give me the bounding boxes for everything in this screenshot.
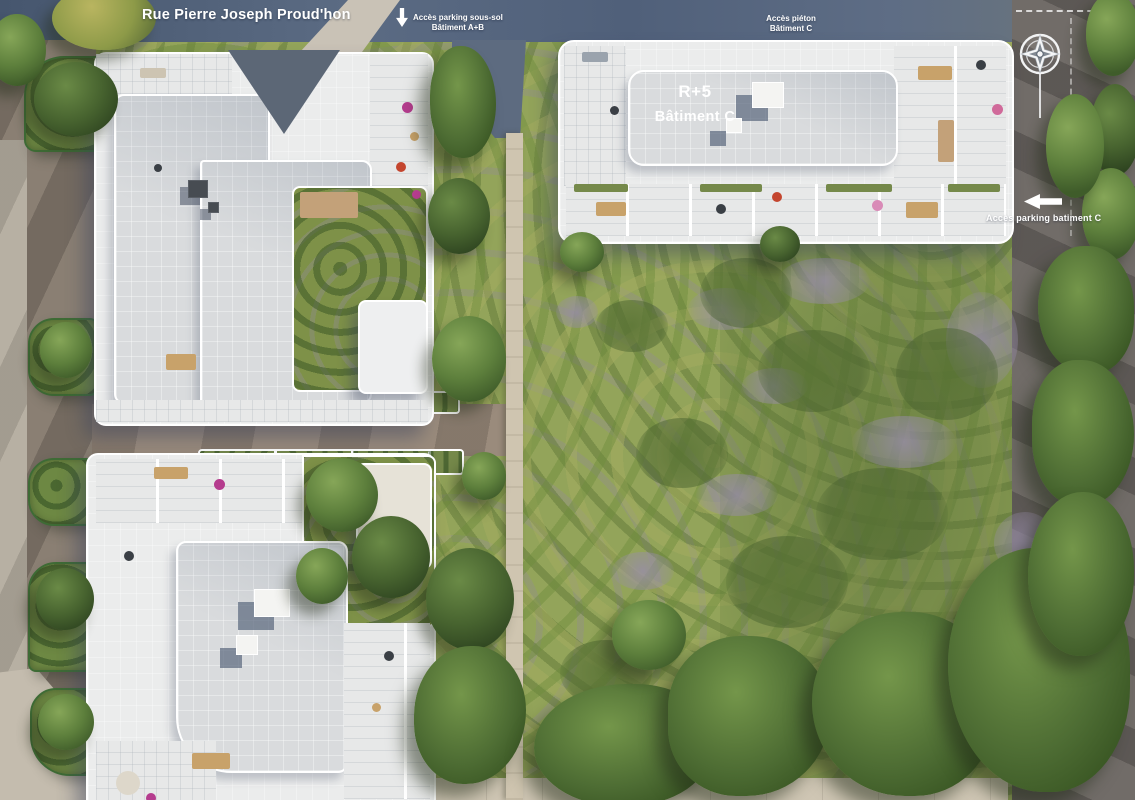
tree [560,232,604,272]
roof-unit [188,180,208,198]
roof-terrace [96,741,216,800]
chair [154,164,162,172]
table [410,132,419,141]
table [918,66,952,80]
tree [40,322,92,378]
tree-grove [1032,360,1134,506]
table [166,354,196,370]
umbrella [396,162,406,172]
access-pieton-line2: Bâtiment C [756,24,826,34]
shrub [596,300,668,352]
access-parking-ab-line2: Bâtiment A+B [413,23,503,33]
tree [34,62,118,136]
roof-unit [752,82,784,108]
tree [38,694,94,750]
building-ab-south[interactable] [86,453,436,800]
bench [582,52,608,62]
building-ab[interactable] [94,52,434,426]
shrub [700,258,792,328]
table [372,703,381,712]
terrace-hedge [826,184,892,192]
access-pieton-line1: Accès piéton [756,14,826,24]
terrace-hedge [574,184,628,192]
terrace-hedge [948,184,1000,192]
roof-unit [236,635,258,655]
umbrella [412,190,421,199]
access-parking-c-label: Accès parking batiment C [986,213,1101,223]
table [154,467,188,479]
roof-terrace [96,400,428,422]
roof-terrace [96,459,316,523]
shrub [758,330,870,412]
bench [140,68,166,78]
garden-pavilion [358,300,428,394]
shrub [896,328,998,420]
tree [352,516,430,598]
table [192,753,230,769]
tree [428,178,490,254]
umbrella [214,479,225,490]
wood-deck [938,120,954,162]
tree-grove [1038,246,1134,374]
wood-deck [300,192,358,218]
flower-patch [556,296,598,328]
chair [976,60,986,70]
chair [124,551,134,561]
flower-patch [778,258,870,304]
table [596,202,626,216]
compass-rose-icon [1014,28,1066,120]
table [906,202,938,218]
flower-patch [612,552,674,590]
umbrella [146,793,156,800]
chair [384,651,394,661]
tree [612,600,686,670]
access-parking-ab-label: Accès parking sous-sol Bâtiment A+B [413,13,503,34]
umbrella [402,102,413,113]
chair [716,204,726,214]
roof-unit [254,589,290,617]
tree [462,452,506,500]
umbrella [772,192,782,202]
building-c-floors: R+5 [640,82,750,102]
umbrella [992,104,1003,115]
access-parking-ab-line1: Accès parking sous-sol [413,13,503,23]
roof-unit [208,202,219,213]
umbrella [872,200,883,211]
tree [36,568,94,630]
building-c[interactable] [558,40,1014,244]
roof-terrace [564,46,626,186]
access-pieton-label: Accès piéton Bâtiment C [756,14,826,35]
chair [610,106,619,115]
site-plan: R+5 Bâtiment C Rue Pierre Joseph Proud'h… [0,0,1135,800]
tree [432,316,506,402]
tree [426,548,514,650]
tree-grove [1028,492,1134,656]
flower-patch [852,416,956,468]
tree [760,226,800,262]
shrub [636,418,728,488]
round-rug [116,771,140,795]
tree [306,458,378,532]
building-c-label: R+5 Bâtiment C [640,82,750,125]
tree [296,548,348,604]
building-c-name: Bâtiment C [640,109,750,125]
shrub [816,468,948,560]
tree-grove [430,46,496,158]
terrace-hedge [700,184,762,192]
shrub [726,536,848,628]
street-name: Rue Pierre Joseph Proud'hon [142,7,351,23]
